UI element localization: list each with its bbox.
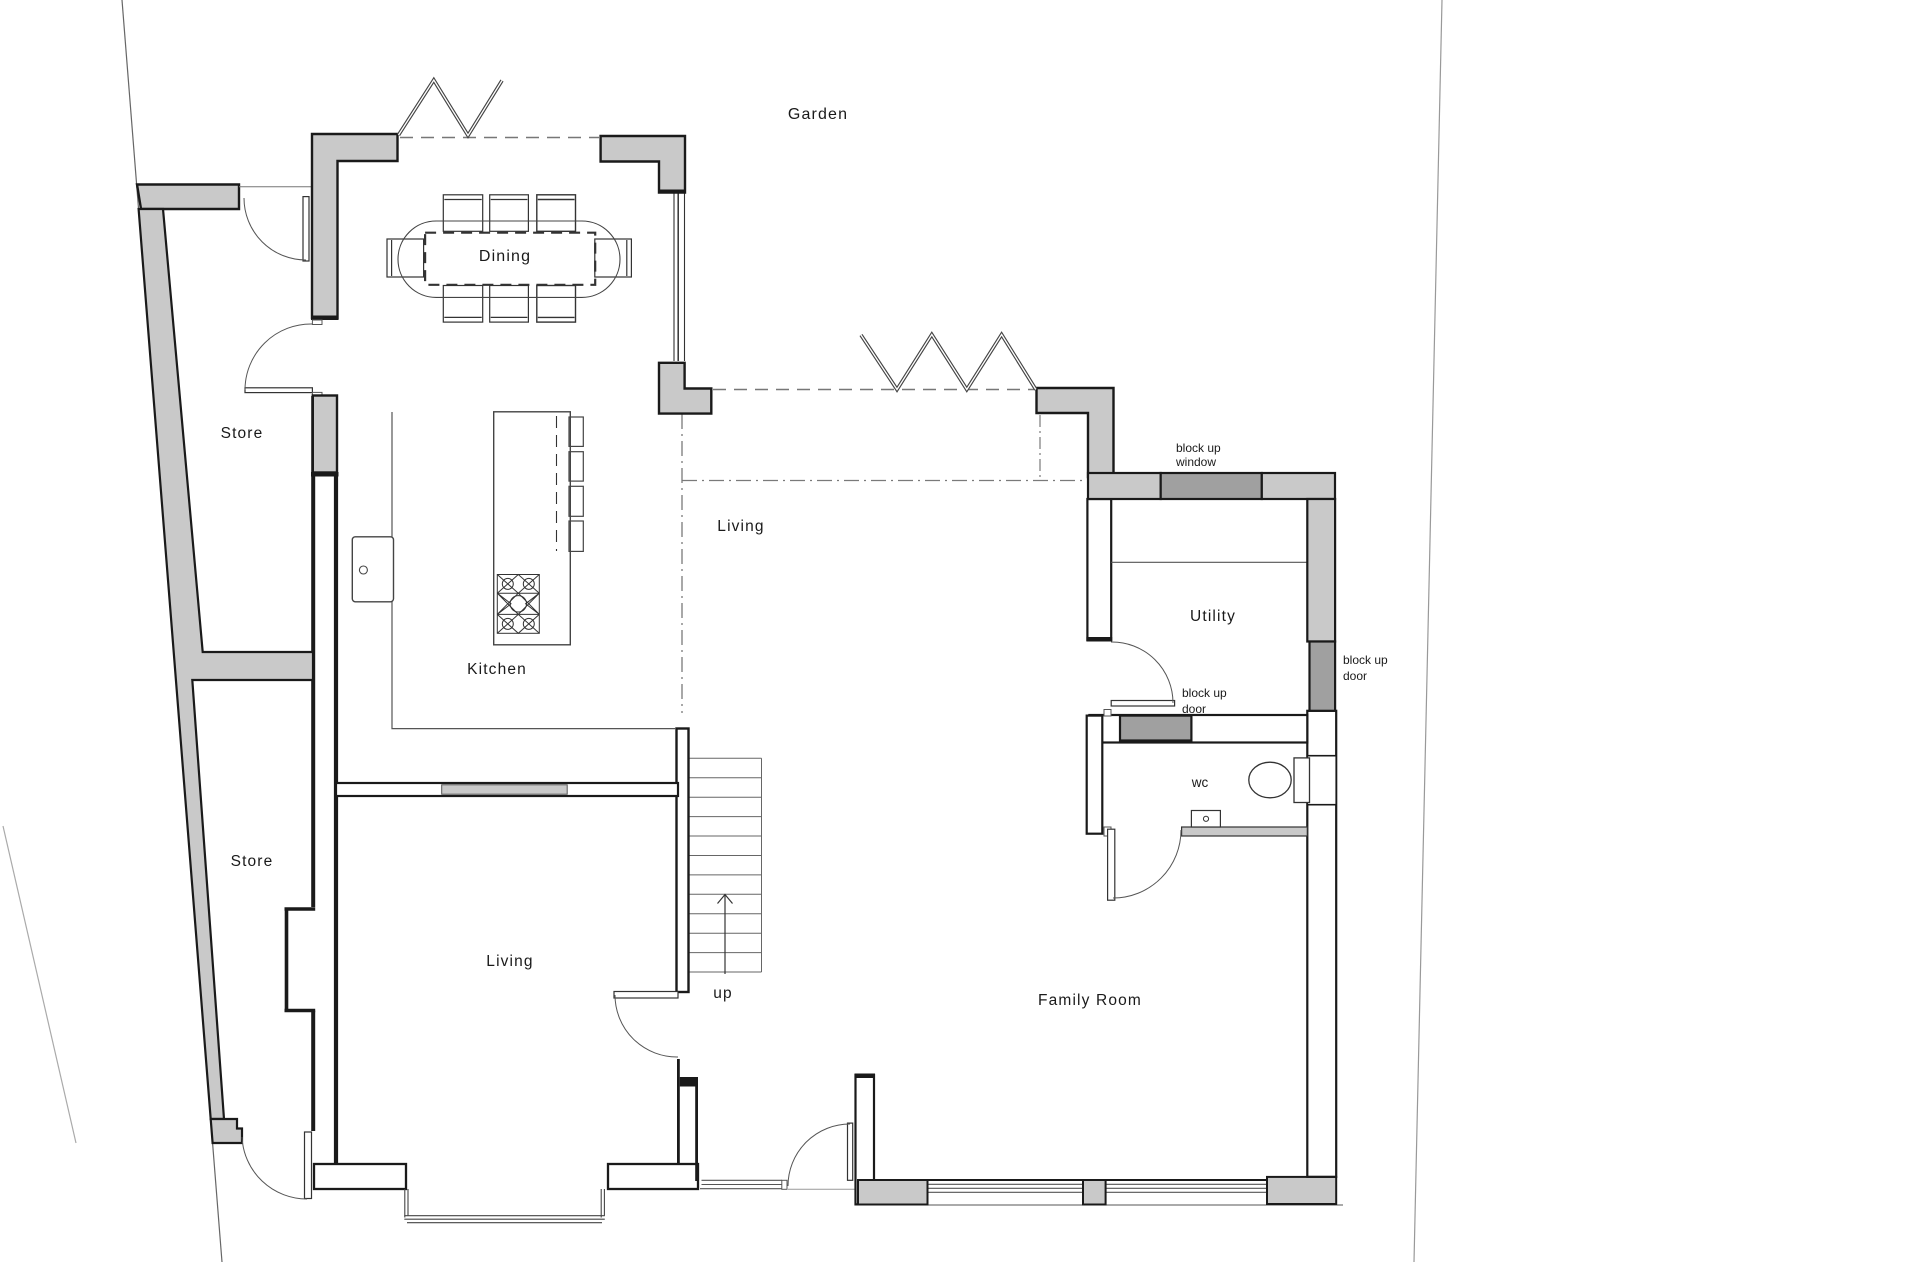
svg-text:block up: block up xyxy=(1182,686,1227,700)
svg-text:Garden: Garden xyxy=(788,106,848,123)
svg-text:door: door xyxy=(1182,702,1206,716)
svg-text:Living: Living xyxy=(717,518,764,535)
svg-text:Store: Store xyxy=(231,853,274,870)
svg-text:Family Room: Family Room xyxy=(1038,992,1142,1009)
svg-text:Dining: Dining xyxy=(479,248,531,265)
svg-text:wc: wc xyxy=(1191,775,1209,790)
svg-text:Living: Living xyxy=(486,953,533,970)
svg-text:window: window xyxy=(1175,455,1216,469)
svg-text:up: up xyxy=(713,985,733,1002)
svg-text:door: door xyxy=(1343,669,1367,683)
svg-text:block up: block up xyxy=(1176,441,1221,455)
svg-text:Kitchen: Kitchen xyxy=(467,661,527,678)
svg-text:block up: block up xyxy=(1343,653,1388,667)
svg-text:Store: Store xyxy=(221,425,264,442)
svg-text:Utility: Utility xyxy=(1190,608,1236,625)
